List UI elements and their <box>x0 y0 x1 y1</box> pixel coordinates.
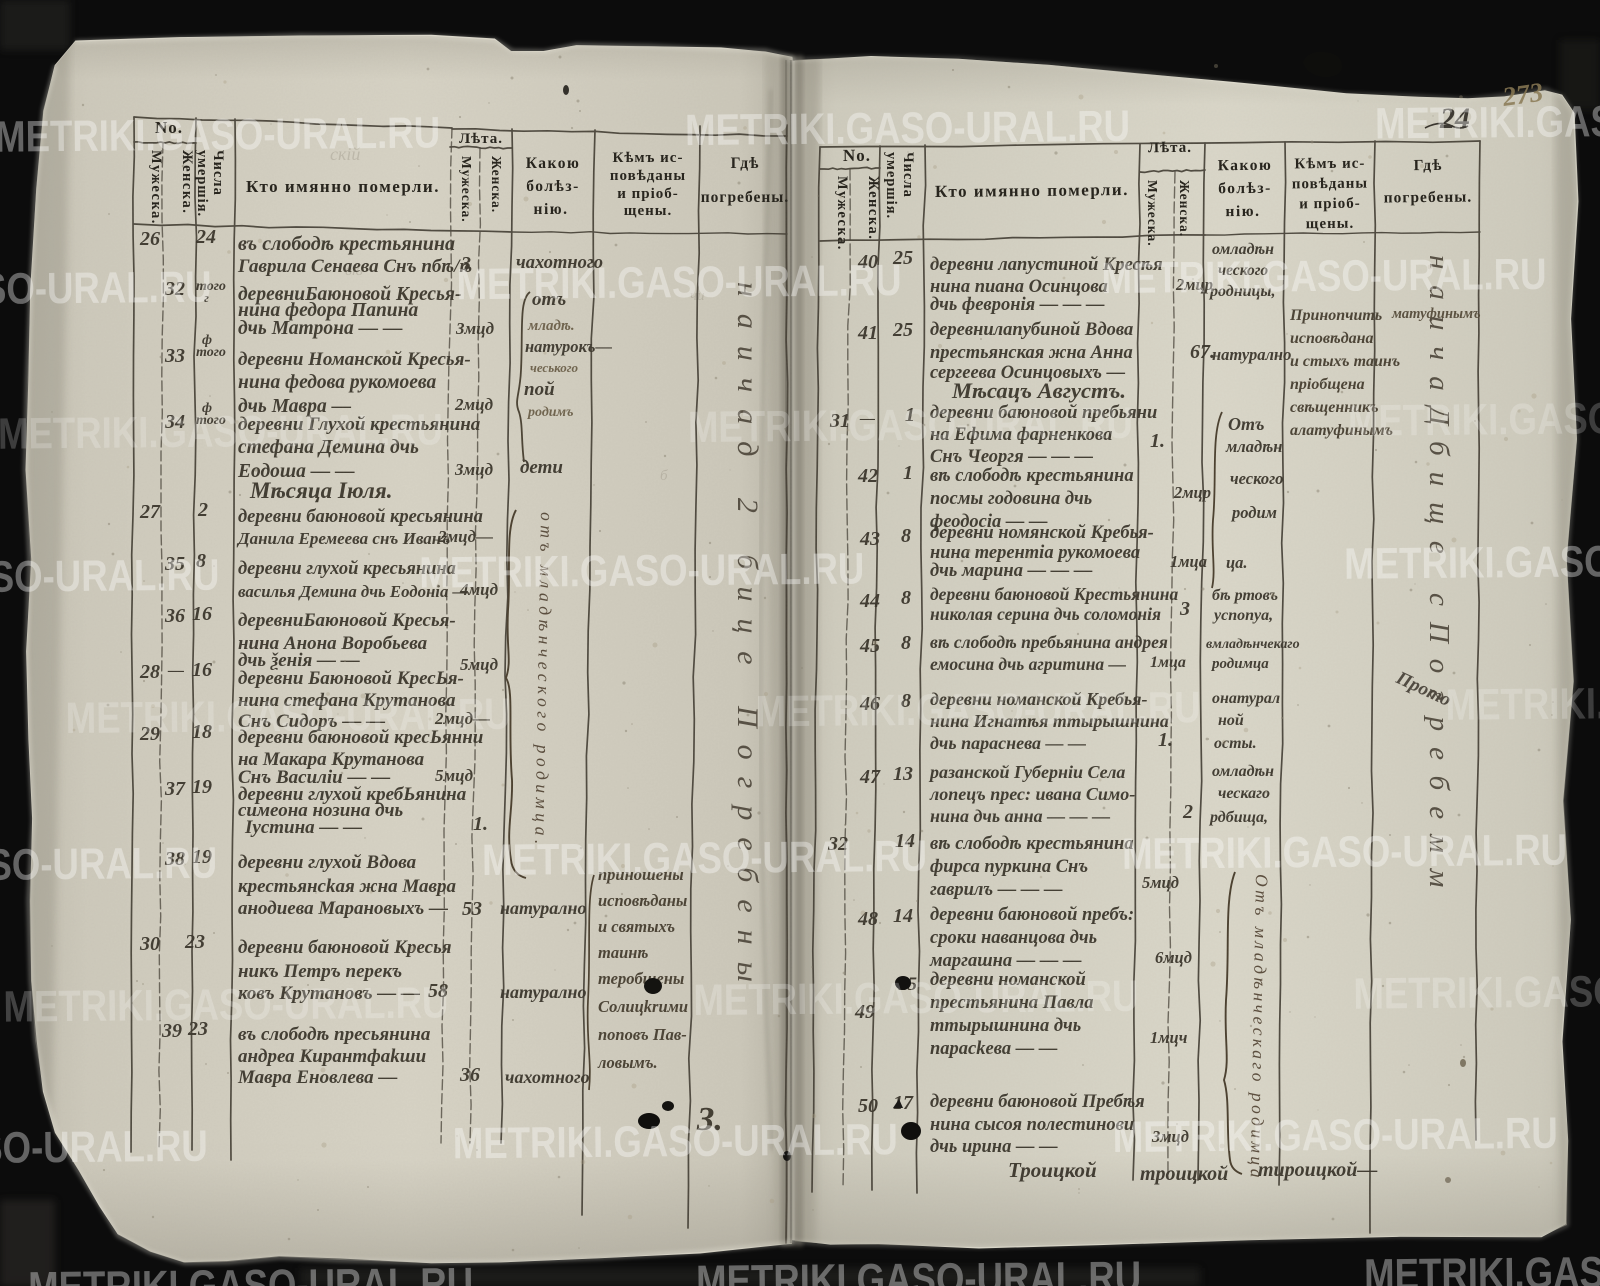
svg-text:METRIKI.GASO-URAL.RU: METRIKI.GASO-URAL.RU <box>1375 95 1600 148</box>
svg-text:METRIKI.GASO-URAL.RU: METRIKI.GASO-URAL.RU <box>1353 965 1600 1018</box>
svg-text:METRIKI.GASO-URAL.RU: METRIKI.GASO-URAL.RU <box>1445 677 1600 730</box>
svg-text:METRIKI.GASO-URAL.RU: METRIKI.GASO-URAL.RU <box>0 405 443 458</box>
svg-text:METRIKI.GASO-URAL.RU: METRIKI.GASO-URAL.RU <box>28 1259 473 1286</box>
svg-text:METRIKI.GASO-URAL.RU: METRIKI.GASO-URAL.RU <box>1364 1246 1600 1286</box>
svg-text:METRIKI.GASO-URAL.RU: METRIKI.GASO-URAL.RU <box>1113 1109 1558 1162</box>
svg-text:METRIKI.GASO-URAL.RU: METRIKI.GASO-URAL.RU <box>482 832 927 885</box>
svg-text:METRIKI.GASO-URAL.RU: METRIKI.GASO-URAL.RU <box>419 544 864 597</box>
svg-text:METRIKI.GASO-URAL.RU: METRIKI.GASO-URAL.RU <box>1122 826 1567 879</box>
svg-text:METRIKI.GASO-URAL.RU: METRIKI.GASO-URAL.RU <box>456 256 901 309</box>
svg-text:METRIKI.GASO-URAL.RU: METRIKI.GASO-URAL.RU <box>685 102 1130 155</box>
svg-text:METRIKI.GASO-URAL.RU: METRIKI.GASO-URAL.RU <box>1101 250 1546 303</box>
svg-text:METRIKI.GASO-URAL.RU: METRIKI.GASO-URAL.RU <box>693 972 1138 1025</box>
svg-text:б: б <box>660 468 668 484</box>
svg-text:METRIKI.GASO-URAL.RU: METRIKI.GASO-URAL.RU <box>1344 536 1600 589</box>
svg-text:METRIKI.GASO-URAL.RU: METRIKI.GASO-URAL.RU <box>755 683 1200 736</box>
svg-text:METRIKI.GASO-URAL.RU: METRIKI.GASO-URAL.RU <box>0 551 220 604</box>
svg-text:METRIKI.GASO-URAL.RU: METRIKI.GASO-URAL.RU <box>0 839 217 892</box>
svg-text:METRIKI.GASO-URAL.RU: METRIKI.GASO-URAL.RU <box>688 399 1133 452</box>
svg-text:METRIKI.GASO-URAL.RU: METRIKI.GASO-URAL.RU <box>65 690 510 743</box>
svg-text:METRIKI.GASO-URAL.RU: METRIKI.GASO-URAL.RU <box>0 263 212 316</box>
svg-text:METRIKI.GASO-URAL.RU: METRIKI.GASO-URAL.RU <box>453 1115 898 1168</box>
svg-text:METRIKI.GASO-URAL.RU: METRIKI.GASO-URAL.RU <box>1348 392 1600 445</box>
svg-text:METRIKI.GASO-URAL.RU: METRIKI.GASO-URAL.RU <box>3 978 448 1031</box>
svg-text:METRIKI.GASO-URAL.RU: METRIKI.GASO-URAL.RU <box>0 108 440 161</box>
svg-text:METRIKI.GASO-URAL.RU: METRIKI.GASO-URAL.RU <box>696 1253 1141 1286</box>
svg-text:METRIKI.GASO-URAL.RU: METRIKI.GASO-URAL.RU <box>0 1122 208 1175</box>
svg-text:вѣ: вѣ <box>345 262 363 279</box>
